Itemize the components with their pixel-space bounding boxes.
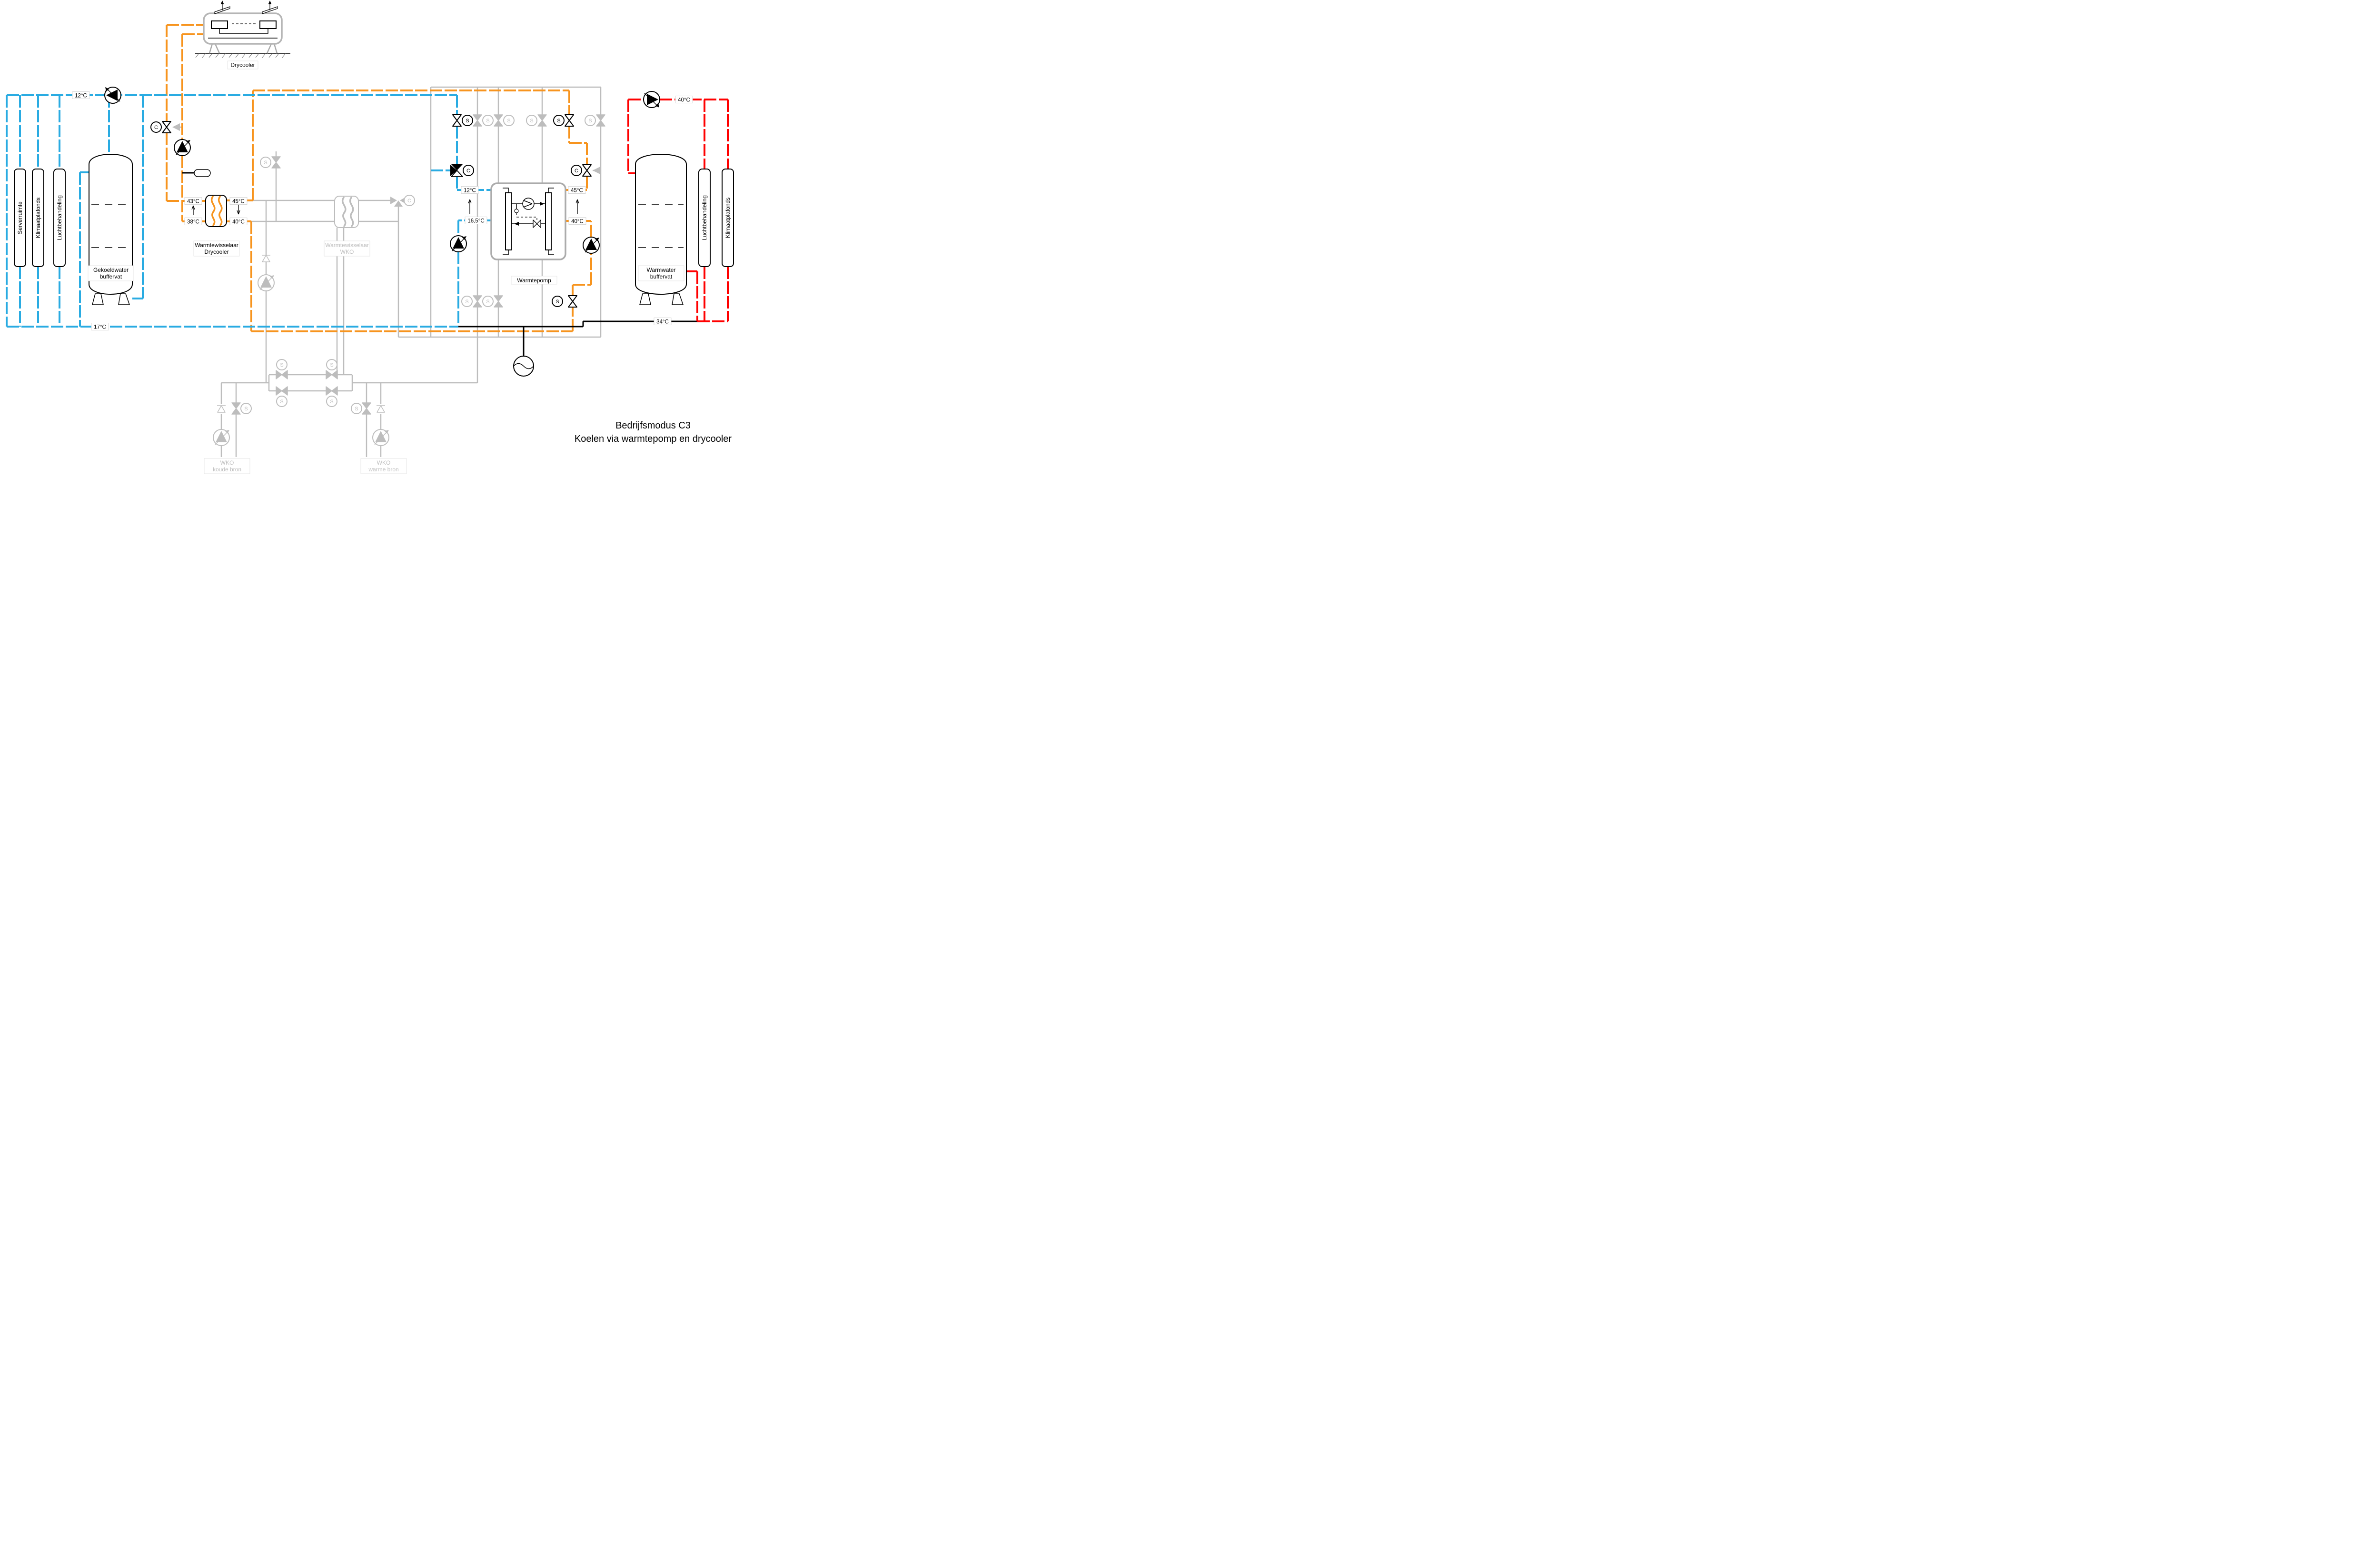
fan-icon (215, 0, 230, 14)
pipes-drycooler-loop (167, 25, 591, 331)
solenoid-icon: S (555, 299, 559, 305)
drycooler-coil-left (211, 21, 228, 29)
load-label: Klimaatplafonds (35, 198, 41, 238)
fan-icon (262, 0, 278, 14)
valve-grey (473, 115, 482, 126)
load-luchtbehandeling-right: Luchtbehandeling (699, 169, 710, 267)
solenoid-icon: S (330, 362, 333, 368)
pump-cold-supply (105, 87, 121, 103)
pump-drycooler (174, 139, 190, 156)
pump-hp-evaporator (450, 236, 466, 252)
valve-grey (232, 403, 240, 414)
svg-text:WKO: WKO (340, 249, 354, 255)
expansion-vessel-drycooler (194, 169, 210, 177)
pump-wko-cold-well (213, 429, 229, 446)
pump-wko-warm-well (373, 429, 389, 446)
valve-manifold (276, 387, 288, 395)
wko-warm-well-label: WKO (377, 459, 391, 466)
pump-wko-primary (258, 275, 274, 291)
hx-drycooler-label: Warmtewisselaar (195, 242, 238, 249)
temp-hp-evap-out: 16,5°C (467, 219, 484, 224)
hx-wko (335, 196, 358, 228)
temp-hx-dc-38: 38°C (187, 219, 199, 225)
valve-manifold (276, 370, 288, 379)
bypass-arrow-drycooler (172, 123, 180, 131)
heat-pump-unit (491, 183, 565, 259)
condenser-bar (545, 193, 551, 250)
evaporator-bar (506, 193, 511, 250)
temp-hot-return: 34°C (656, 319, 669, 325)
check-valve-icon (377, 406, 385, 412)
svg-text:warme bron: warme bron (368, 466, 398, 473)
controller-icon: C (407, 198, 411, 204)
valve-orange-supply (565, 115, 574, 126)
controller-icon: C (154, 125, 158, 130)
expansion-vessel-main (514, 356, 534, 376)
compressor-icon (523, 198, 534, 209)
solenoid-icon: S (486, 118, 489, 124)
solenoid-icon: S (486, 299, 489, 305)
load-klimaatplafonds-right: Klimaatplafonds (722, 169, 734, 267)
operating-mode-title: Bedrijfsmodus C3 (615, 420, 691, 431)
solenoid-icon: S (588, 118, 592, 124)
valve-orange-return (568, 296, 577, 307)
svg-text:Drycooler: Drycooler (204, 249, 228, 255)
operating-mode-subtitle: Koelen via warmtepomp en drycooler (575, 434, 732, 444)
temp-hot-supply: 40°C (678, 98, 690, 103)
temp-hp-evap-in: 12°C (464, 188, 476, 194)
svg-text:buffervat: buffervat (650, 273, 673, 280)
valve-grey (538, 115, 546, 126)
diagram-canvas: S S S S S S S S S S S S S S S S C C C C … (0, 0, 744, 482)
pump-hot-supply (644, 91, 660, 108)
valve-grey (494, 296, 503, 307)
pipes-cold-circuit (7, 95, 491, 327)
load-label: Klimaatplafonds (724, 198, 731, 238)
solenoid-icon: S (530, 118, 533, 124)
check-valve-icon (262, 255, 270, 262)
drycooler-label: Drycooler (230, 62, 255, 69)
solenoid-icon: S (355, 406, 358, 412)
valve-cold-riser (453, 115, 461, 126)
controller-icon: C (466, 168, 470, 174)
load-label: Luchtbehandeling (701, 195, 708, 240)
drycooler-unit (195, 0, 290, 58)
temp-hx-dc-40: 40°C (232, 219, 245, 225)
load-label: Luchtbehandeling (56, 195, 63, 240)
wko-cold-well-label: WKO (220, 459, 234, 466)
solenoid-icon: S (264, 160, 267, 166)
solenoid-icon: S (280, 399, 283, 405)
valve-hp-3way-left (450, 164, 463, 177)
heat-pump-label: Warmtepomp (517, 277, 551, 284)
temp-hp-cond-out: 45°C (571, 188, 583, 194)
solenoid-icon: S (330, 399, 333, 405)
controller-icon: C (575, 168, 578, 174)
warm-buffer-label: Warmwater (647, 267, 676, 273)
valve-grey (494, 115, 503, 126)
svg-text:buffervat: buffervat (100, 273, 122, 280)
hx-drycooler (206, 195, 227, 227)
valve-grey (473, 296, 482, 307)
pump-hp-condenser (583, 237, 599, 253)
valve-grey (272, 157, 280, 168)
valve-manifold (326, 370, 337, 379)
valve-grey (596, 115, 605, 126)
temp-hx-dc-43: 43°C (187, 199, 199, 205)
valve-manifold (326, 387, 337, 395)
load-serverruimte: Serverruimte (14, 169, 26, 267)
temperature-labels: 12°C 17°C 43°C 38°C 45°C 40°C 12°C 16,5°… (72, 92, 693, 330)
solenoid-icon: S (465, 299, 468, 305)
pipes-wko-inactive (172, 87, 601, 457)
drycooler-coil-right (260, 21, 276, 29)
svg-text:koude bron: koude bron (213, 466, 241, 473)
warm-buffer-tank (635, 154, 686, 305)
load-klimaatplafonds-left: Klimaatplafonds (32, 169, 44, 267)
cold-buffer-label: Gekoeldwater (93, 267, 129, 273)
valve-hp-3way-right (583, 165, 591, 176)
solenoid-icon: S (507, 118, 510, 124)
hydraulic-schematic: S S S S S S S S S S S S S S S S C C C C … (0, 0, 744, 482)
temp-hp-cond-in: 40°C (571, 219, 584, 225)
bypass-arrow-heatpump (593, 167, 600, 174)
hx-wko-label: Warmtewisselaar (325, 242, 369, 249)
sensor-icon (515, 209, 518, 213)
solenoid-icon: S (466, 118, 469, 124)
cold-buffer-tank (89, 154, 132, 305)
valve-drycooler-3way (162, 121, 171, 133)
temp-hx-dc-45: 45°C (232, 199, 245, 205)
temp-cold-return: 17°C (94, 325, 106, 330)
solenoid-icon: S (244, 406, 248, 412)
solenoid-icon: S (557, 118, 560, 124)
check-valve-icon (217, 406, 226, 412)
title-block: Bedrijfsmodus C3 Koelen via warmtepomp e… (575, 420, 732, 444)
solenoid-icon: S (280, 362, 283, 368)
temp-cold-supply: 12°C (75, 93, 87, 99)
load-luchtbehandeling-left: Luchtbehandeling (54, 169, 65, 267)
valve-grey (362, 403, 371, 414)
load-label: Serverruimte (17, 201, 23, 234)
